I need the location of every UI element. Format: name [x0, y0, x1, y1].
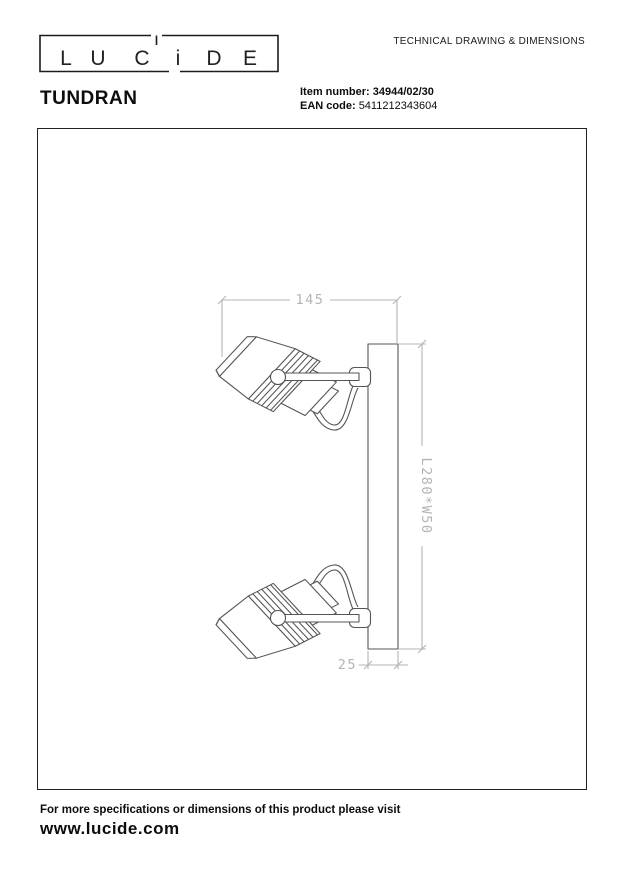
document-title: TECHNICAL DRAWING & DIMENSIONS: [393, 36, 585, 47]
ean-code-line: EAN code: 5411212343604: [300, 100, 437, 112]
spot-arm: [283, 373, 359, 381]
logo-letter: i: [176, 47, 181, 70]
lucide-logo: L U C i D E: [38, 32, 280, 76]
ean-code-label: EAN code:: [300, 100, 356, 112]
dim-length-label: L280*W50: [418, 457, 434, 534]
dim-width-label: 145: [296, 292, 325, 308]
logo-letter: U: [90, 47, 105, 70]
logo-letter: C: [134, 47, 149, 70]
footer-note: For more specifications or dimensions of…: [40, 804, 400, 816]
logo-letter: E: [243, 47, 257, 70]
spotlight-assembly-top: [208, 328, 370, 430]
spotlight-assembly-bottom: [208, 565, 370, 667]
spot-pivot-joint: [271, 370, 286, 385]
logo-letter: L: [60, 47, 72, 70]
item-number-line: Item number: 34944/02/30: [300, 86, 434, 98]
website-url: www.lucide.com: [40, 819, 180, 839]
item-number-value: 34944/02/30: [373, 86, 434, 98]
product-name: TUNDRAN: [40, 88, 137, 110]
ean-code-value: 5411212343604: [359, 100, 438, 112]
fixture-drawing: [208, 328, 398, 666]
technical-drawing-canvas: 145 L280*W50 25: [37, 128, 587, 788]
base-plate: [368, 344, 398, 649]
logo-letter: D: [206, 47, 221, 70]
dim-depth-label: 25: [338, 657, 357, 673]
item-number-label: Item number:: [300, 86, 370, 98]
